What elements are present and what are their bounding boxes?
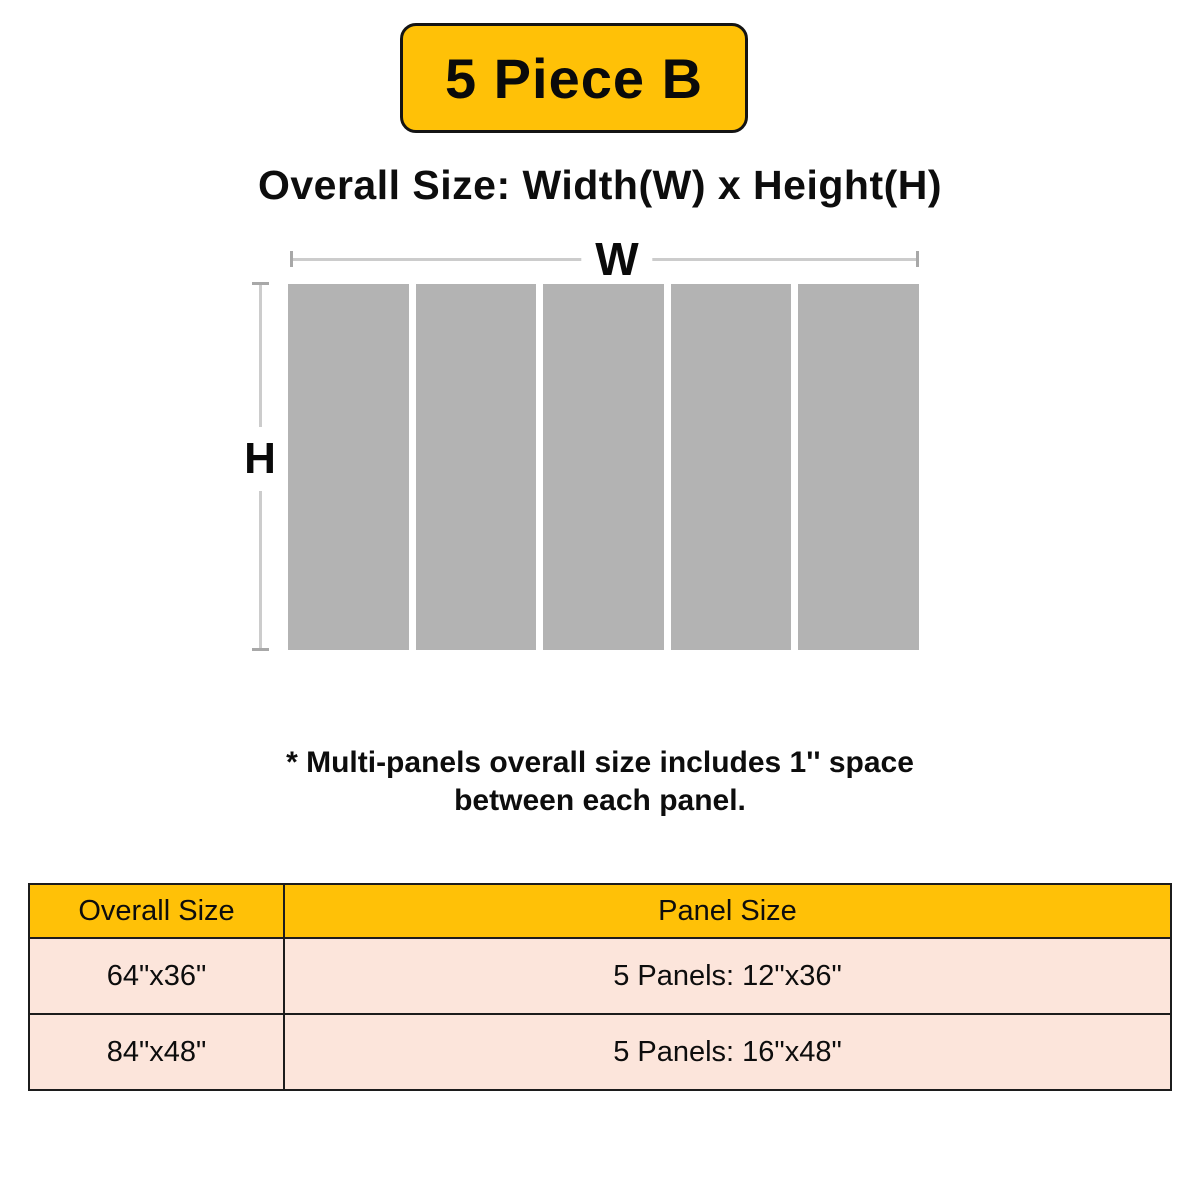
table-row: 64"x36" 5 Panels: 12"x36": [29, 938, 1171, 1014]
overall-size-header: Overall Size: [29, 884, 284, 938]
panel: [798, 284, 919, 650]
height-dimension-label: H: [238, 427, 282, 491]
width-dimension-tick-left: [290, 251, 293, 267]
panel-size-cell: 5 Panels: 16"x48": [284, 1014, 1171, 1090]
panel-size-cell: 5 Panels: 12"x36": [284, 938, 1171, 1014]
height-dimension-tick-bottom: [252, 648, 269, 651]
panel-group: [288, 284, 919, 650]
width-dimension-label: W: [581, 236, 652, 282]
size-guide-infographic: 5 Piece B Overall Size: Width(W) x Heigh…: [0, 0, 1200, 1200]
panel: [288, 284, 409, 650]
panel: [671, 284, 792, 650]
multi-panel-note: * Multi-panels overall size includes 1''…: [0, 744, 1200, 820]
size-table-header-row: Overall Size Panel Size: [29, 884, 1171, 938]
height-dimension-tick-top: [252, 282, 269, 285]
panel: [543, 284, 664, 650]
overall-size-cell: 84"x48": [29, 1014, 284, 1090]
overall-size-cell: 64"x36": [29, 938, 284, 1014]
table-row: 84"x48" 5 Panels: 16"x48": [29, 1014, 1171, 1090]
page-title: Overall Size: Width(W) x Height(H): [0, 162, 1200, 209]
panel-size-header: Panel Size: [284, 884, 1171, 938]
width-dimension-tick-right: [916, 251, 919, 267]
note-line-2: between each panel.: [0, 782, 1200, 820]
note-line-1: * Multi-panels overall size includes 1''…: [0, 744, 1200, 782]
panel: [416, 284, 537, 650]
piece-count-badge: 5 Piece B: [400, 23, 748, 133]
size-table: Overall Size Panel Size 64"x36" 5 Panels…: [28, 883, 1172, 1091]
